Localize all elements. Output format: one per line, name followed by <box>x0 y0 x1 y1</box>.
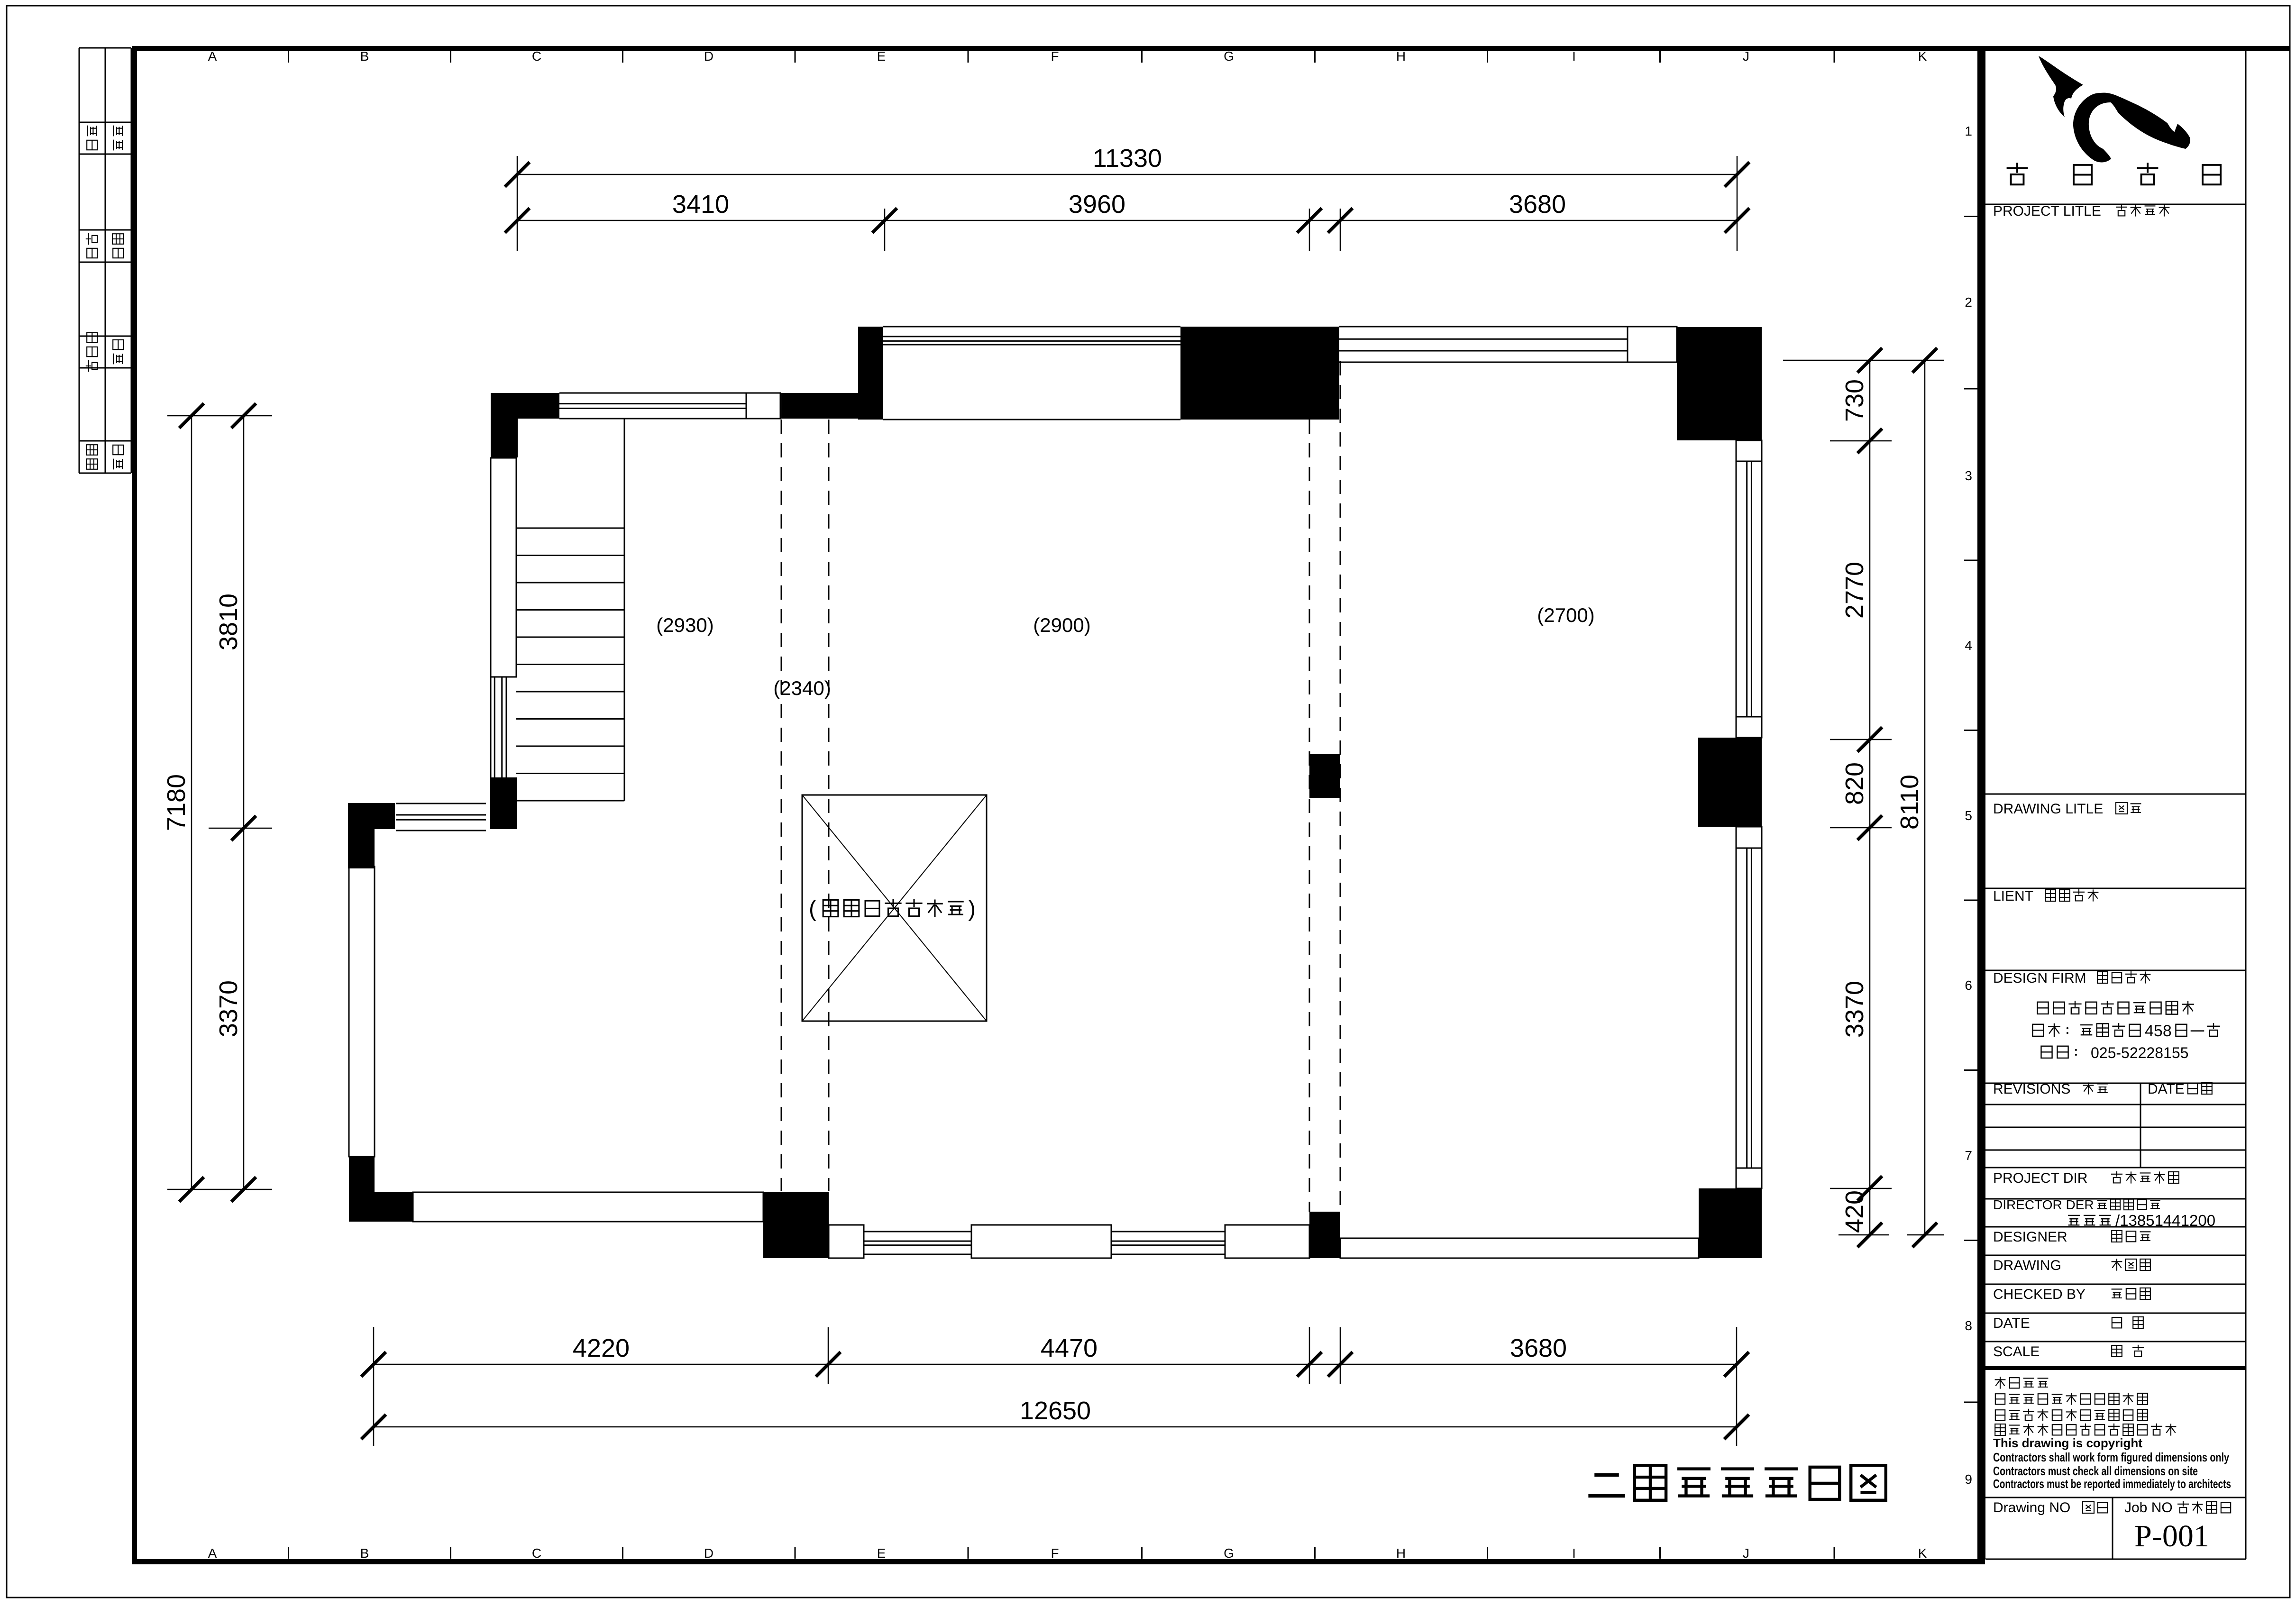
svg-text:DRAWING: DRAWING <box>1993 1258 2061 1273</box>
svg-text:SCALE: SCALE <box>1993 1344 2040 1360</box>
svg-text:D: D <box>704 1546 713 1561</box>
svg-text:3: 3 <box>1965 468 1972 483</box>
svg-text:3810: 3810 <box>214 593 243 650</box>
svg-text:H: H <box>1396 49 1406 64</box>
svg-text:G: G <box>1224 1546 1234 1561</box>
svg-text:(2900): (2900) <box>1033 614 1090 636</box>
svg-text:/13851441200: /13851441200 <box>2115 1212 2215 1229</box>
svg-text:2: 2 <box>1965 295 1972 310</box>
svg-text:A: A <box>208 49 217 64</box>
svg-text:11330: 11330 <box>1093 144 1162 173</box>
svg-text:G: G <box>1224 49 1234 64</box>
svg-text:Contractors must be reported i: Contractors must be reported immediately… <box>1993 1477 2231 1491</box>
svg-text:(2340): (2340) <box>773 677 831 699</box>
svg-text:Contractors shall work form fi: Contractors shall work form figured dime… <box>1993 1450 2229 1464</box>
svg-text:3370: 3370 <box>214 980 243 1037</box>
svg-text:C: C <box>532 49 541 64</box>
svg-text:I: I <box>1572 49 1576 64</box>
svg-text:LIENT: LIENT <box>1993 888 2033 904</box>
svg-text:3680: 3680 <box>1509 190 1566 219</box>
svg-text:(: ( <box>809 896 816 922</box>
svg-text:F: F <box>1051 49 1059 64</box>
svg-text:B: B <box>360 49 369 64</box>
svg-text:B: B <box>360 1546 369 1561</box>
svg-text:3370: 3370 <box>1840 981 1869 1038</box>
svg-text:1: 1 <box>1965 124 1972 138</box>
svg-text:2770: 2770 <box>1840 562 1869 619</box>
svg-text:730: 730 <box>1840 379 1869 422</box>
svg-text:420: 420 <box>1840 1190 1869 1233</box>
svg-text:12650: 12650 <box>1020 1397 1091 1425</box>
svg-text:8: 8 <box>1965 1318 1972 1333</box>
svg-text:E: E <box>877 49 886 64</box>
svg-text:3680: 3680 <box>1510 1334 1567 1362</box>
svg-text:J: J <box>1743 49 1749 64</box>
svg-text:E: E <box>877 1546 886 1561</box>
svg-text:PROJECT LITLE: PROJECT LITLE <box>1993 203 2101 219</box>
svg-text:(2930): (2930) <box>656 614 713 636</box>
svg-text:Job NO: Job NO <box>2124 1500 2173 1516</box>
svg-text:DESIGN FIRM: DESIGN FIRM <box>1993 970 2086 986</box>
svg-text:F: F <box>1051 1546 1059 1561</box>
svg-text:C: C <box>532 1546 541 1561</box>
svg-text:A: A <box>208 1546 217 1561</box>
svg-text:P-001: P-001 <box>2134 1519 2209 1553</box>
svg-text:D: D <box>704 49 713 64</box>
svg-text:(2700): (2700) <box>1537 604 1594 626</box>
svg-text:I: I <box>1572 1546 1576 1561</box>
svg-text:DATE: DATE <box>1993 1315 2030 1331</box>
svg-text:DATE: DATE <box>2148 1081 2185 1097</box>
svg-text:K: K <box>1918 49 1927 64</box>
svg-text:3960: 3960 <box>1069 190 1125 219</box>
svg-text:REVISIONS: REVISIONS <box>1993 1081 2070 1097</box>
svg-text:4470: 4470 <box>1041 1334 1098 1362</box>
svg-text:J: J <box>1743 1546 1749 1561</box>
svg-text:6: 6 <box>1965 978 1972 993</box>
svg-text:4: 4 <box>1965 638 1972 653</box>
svg-text:DESIGNER: DESIGNER <box>1993 1229 2067 1245</box>
svg-text:820: 820 <box>1840 762 1869 805</box>
svg-text:4220: 4220 <box>573 1334 630 1362</box>
svg-text:3410: 3410 <box>672 190 729 219</box>
svg-text:458: 458 <box>2145 1022 2172 1040</box>
svg-text:): ) <box>968 896 976 922</box>
svg-text:This drawing is copyright: This drawing is copyright <box>1993 1436 2142 1450</box>
svg-text:8110: 8110 <box>1895 775 1924 830</box>
svg-text:CHECKED BY: CHECKED BY <box>1993 1287 2086 1302</box>
svg-text:Drawing NO: Drawing NO <box>1993 1500 2070 1516</box>
svg-text:Contractors must check all dim: Contractors must check all dimensions on… <box>1993 1464 2198 1478</box>
svg-text:025-52228155: 025-52228155 <box>2091 1044 2188 1061</box>
svg-text:DRAWING LITLE: DRAWING LITLE <box>1993 801 2103 817</box>
svg-text:5: 5 <box>1965 808 1972 823</box>
svg-text:DIRECTOR DER: DIRECTOR DER <box>1993 1197 2094 1212</box>
svg-text:PROJECT DIR: PROJECT DIR <box>1993 1170 2087 1186</box>
svg-text:7: 7 <box>1965 1148 1972 1163</box>
svg-text:9: 9 <box>1965 1472 1972 1487</box>
svg-text:K: K <box>1918 1546 1927 1561</box>
svg-text:7180: 7180 <box>162 774 191 831</box>
svg-text:H: H <box>1396 1546 1406 1561</box>
